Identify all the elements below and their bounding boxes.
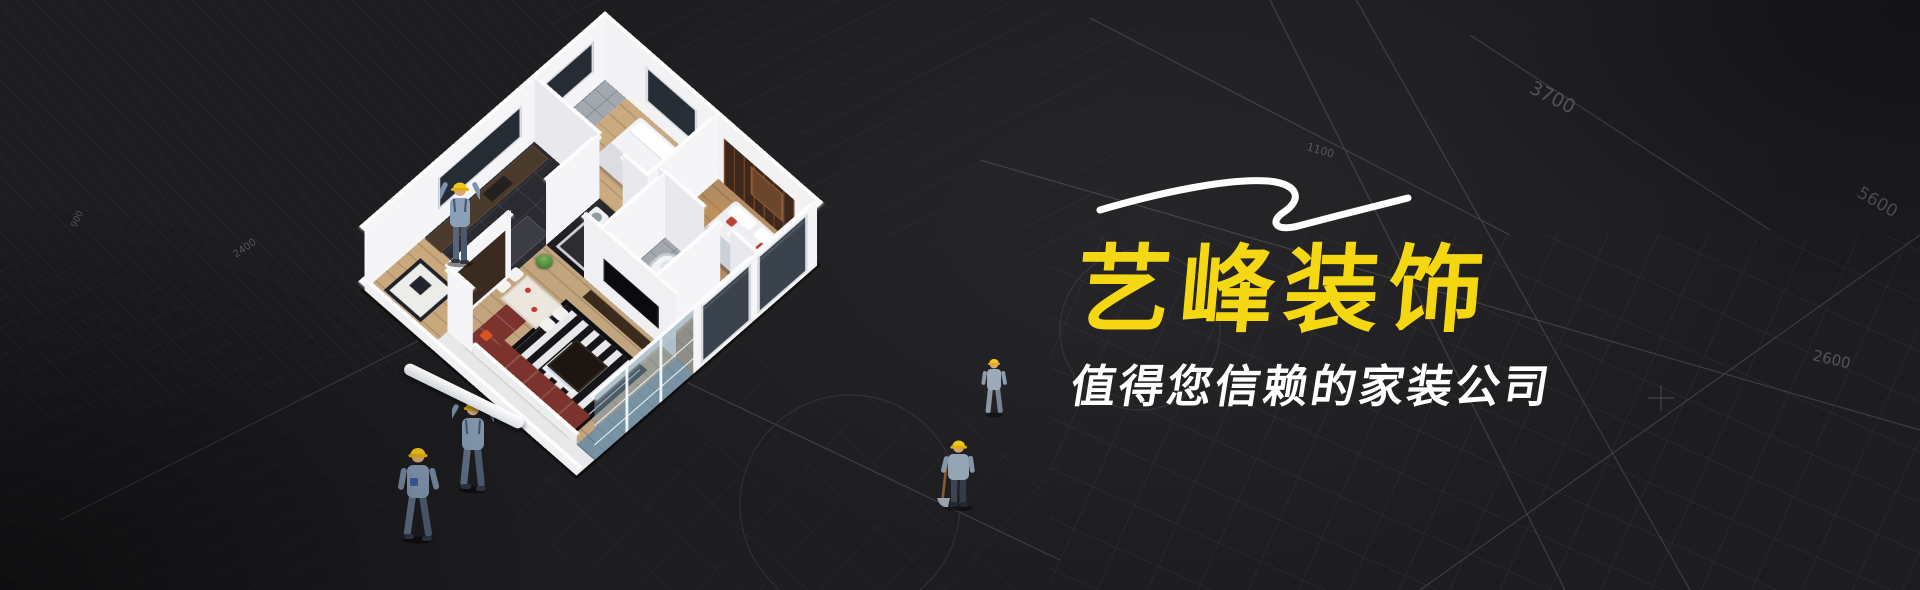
dimension-label: 3700	[1526, 77, 1579, 119]
company-tagline: 值得您信赖的家装公司	[1067, 350, 1557, 415]
company-title: 艺峰装饰	[1072, 240, 1497, 343]
dimension-label: 5600	[1854, 183, 1901, 222]
worker-walking	[396, 440, 440, 544]
worker-with-shovel	[932, 436, 980, 512]
swoosh-stroke	[1078, 148, 1418, 248]
worker-walking-small	[980, 354, 1008, 418]
worker-arms-raised	[440, 176, 480, 268]
hero-banner: 3700 1100 5600 2600 2400 900	[0, 0, 1920, 590]
